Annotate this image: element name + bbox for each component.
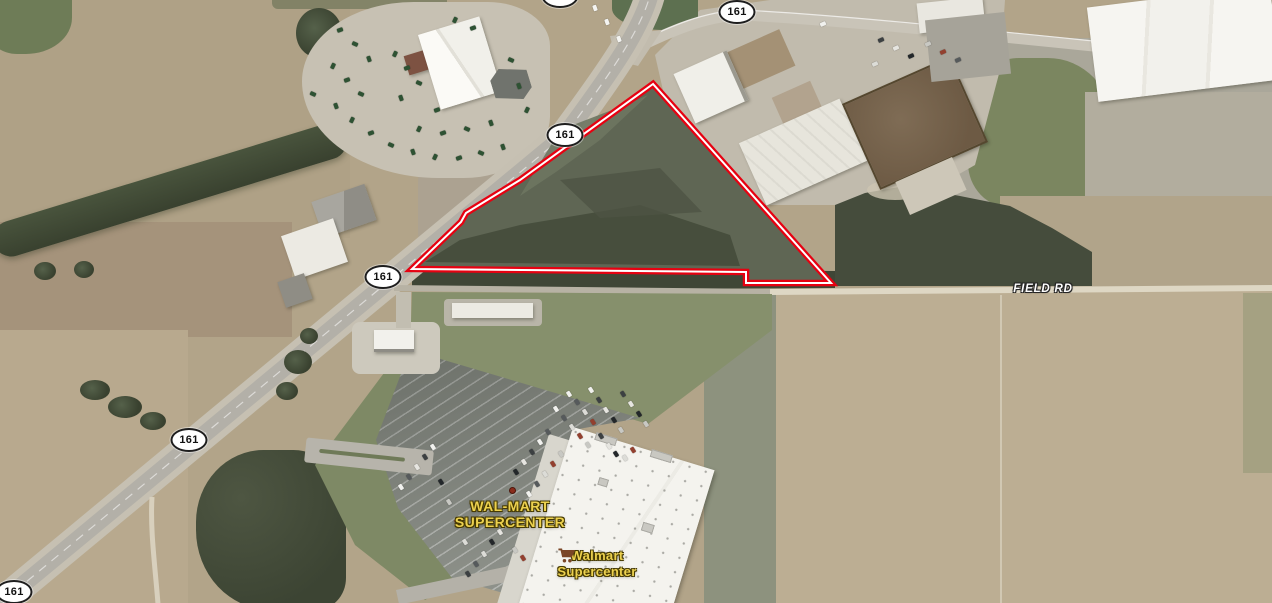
car-speck [924, 41, 931, 47]
tree-clump [140, 412, 166, 430]
imagery-dot [509, 487, 516, 494]
rooftop-unit [597, 477, 609, 488]
equipment-speck [432, 153, 438, 160]
tree-clump [300, 328, 318, 344]
warehouse-large-white [1087, 0, 1272, 102]
route-shield-161: 161 [365, 265, 402, 289]
route-shield-161: 161 [719, 0, 756, 24]
equipment-speck [333, 102, 339, 109]
car-speck [620, 390, 627, 397]
metal-shed [277, 273, 312, 308]
equipment-speck [387, 142, 394, 148]
equipment-speck [488, 119, 494, 126]
equipment-speck [477, 150, 484, 156]
grass-patch [0, 0, 72, 54]
equipment-speck [463, 126, 470, 132]
equipment-speck [309, 91, 316, 97]
imagery-label-line2: SUPERCENTER [455, 514, 565, 530]
shopping-cart-icon [557, 548, 575, 564]
equipment-speck [330, 62, 336, 69]
car-speck [628, 400, 635, 407]
car-speck [588, 386, 595, 393]
equipment-speck [416, 125, 422, 132]
tree-clump [34, 262, 56, 280]
route-shield-161: 161 [542, 0, 579, 8]
dirt-track [152, 497, 158, 603]
car-speck [819, 21, 826, 27]
equipment-speck [351, 41, 358, 47]
tree-clump [284, 350, 312, 374]
field-patch [704, 290, 776, 603]
car-speck [636, 410, 643, 417]
tree-clump [276, 382, 298, 400]
field-patch [418, 145, 548, 270]
equipment-speck [343, 77, 350, 83]
scrub-area [835, 186, 1092, 286]
grass-patch [968, 58, 1113, 208]
equipment-speck [392, 50, 398, 57]
car-speck [892, 45, 899, 51]
car-speck [643, 420, 650, 427]
poi-walmart-supercenter[interactable]: Walmart Supercenter [557, 548, 636, 580]
car-speck [877, 37, 884, 43]
equipment-speck [500, 143, 506, 150]
rooftop-unit [641, 522, 655, 534]
parcel-interior-dark [425, 205, 740, 266]
equipment-speck [524, 106, 530, 113]
equipment-speck [357, 91, 364, 97]
field-patch [1085, 92, 1272, 292]
truck-speck [616, 35, 622, 42]
satellite-map[interactable]: 161161161161161161 FIELD RD WAL-MART SUP… [0, 0, 1272, 603]
tree-clump [296, 8, 342, 58]
route-shield-161: 161 [547, 123, 584, 147]
road-field-rd-west [394, 288, 770, 292]
poi-label-line2: Supercenter [557, 564, 636, 580]
road-label-field-rd: FIELD RD [1013, 283, 1072, 295]
equipment-speck [415, 80, 422, 86]
dealership-main-building [418, 16, 502, 109]
small-building-white [917, 0, 986, 33]
tree-clump [80, 380, 110, 400]
field-boundary [1000, 295, 1002, 603]
route-shield-161: 161 [171, 428, 208, 452]
equipment-speck [455, 155, 462, 161]
tree-band [412, 268, 835, 290]
equipment-speck [433, 107, 440, 113]
equipment-speck [507, 57, 514, 63]
scrub-area [196, 450, 346, 603]
tree-strip [272, 0, 447, 9]
car-speck [618, 426, 625, 433]
warehouse-brown-roof [842, 56, 988, 190]
gas-station-building [374, 330, 414, 352]
driveway [396, 292, 411, 328]
equipment-speck [366, 55, 372, 62]
grass-strip [1243, 293, 1272, 473]
car-speck [939, 49, 946, 55]
tree-clump [720, 289, 764, 321]
imagery-label-walmart: WAL-MART SUPERCENTER [455, 498, 565, 530]
equipment-speck [410, 148, 416, 155]
field-patch [765, 290, 1272, 603]
equipment-speck [336, 27, 343, 33]
field-patch [1000, 196, 1272, 292]
imagery-label-line1: WAL-MART [455, 498, 565, 514]
tree-clump [74, 261, 94, 278]
field-patch [0, 330, 188, 603]
warehouse-white [674, 51, 749, 124]
equipment-speck [349, 116, 355, 123]
equipment-speck [439, 130, 446, 136]
parcel-interior-dark [560, 168, 702, 218]
parcel-interior-light [520, 95, 648, 196]
grass-patch [612, 0, 698, 30]
car-speck [954, 57, 961, 63]
car-speck [907, 53, 914, 59]
truck-speck [604, 18, 610, 25]
tree-clump [108, 396, 142, 418]
route-shield-161: 161 [0, 580, 33, 603]
equipment-speck [367, 130, 374, 136]
strip-building [452, 303, 533, 318]
car-speck [596, 396, 603, 403]
truck-speck [592, 4, 598, 11]
entrance [650, 449, 673, 463]
car-speck [871, 61, 878, 67]
equipment-speck [398, 94, 404, 101]
